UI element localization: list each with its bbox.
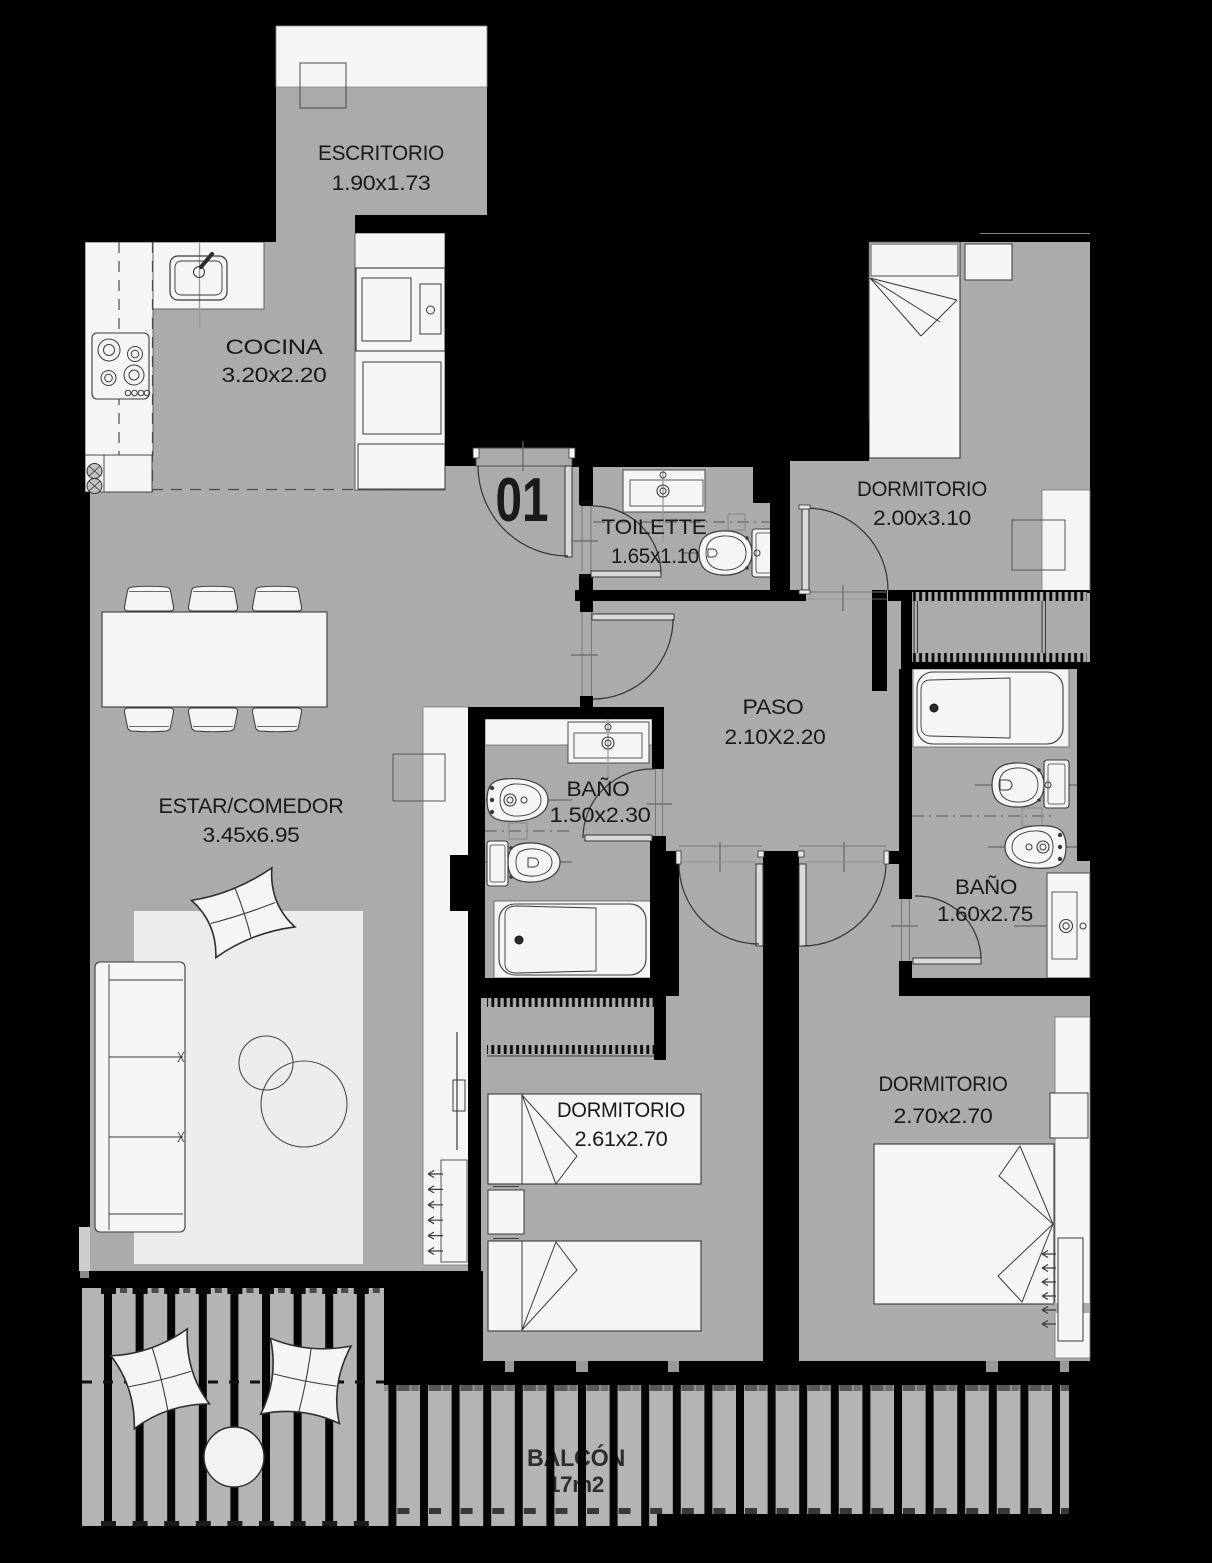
svg-text:PASO: PASO	[743, 695, 804, 719]
svg-text:1.65x1.10: 1.65x1.10	[611, 544, 699, 568]
svg-text:BAÑO: BAÑO	[955, 874, 1017, 899]
svg-text:DORMITORIO: DORMITORIO	[557, 1098, 685, 1122]
svg-text:17m2: 17m2	[548, 1472, 604, 1497]
svg-text:TOILETTE: TOILETTE	[602, 515, 707, 539]
svg-text:3.20x2.20: 3.20x2.20	[222, 363, 327, 387]
svg-text:1.90x1.73: 1.90x1.73	[332, 171, 431, 195]
svg-text:3.45x6.95: 3.45x6.95	[203, 823, 300, 847]
svg-text:BAÑO: BAÑO	[567, 776, 630, 801]
svg-text:1.50x2.30: 1.50x2.30	[550, 803, 651, 827]
svg-text:ESCRITORIO: ESCRITORIO	[318, 141, 444, 165]
svg-text:2.70x2.70: 2.70x2.70	[894, 1104, 993, 1128]
svg-text:ESTAR/COMEDOR: ESTAR/COMEDOR	[159, 794, 344, 818]
svg-text:01: 01	[496, 466, 549, 535]
svg-text:2.10X2.20: 2.10X2.20	[725, 725, 826, 749]
svg-text:2.00x3.10: 2.00x3.10	[873, 506, 971, 530]
svg-text:DORMITORIO: DORMITORIO	[857, 477, 987, 501]
svg-text:2.61x2.70: 2.61x2.70	[575, 1127, 668, 1151]
svg-text:COCINA: COCINA	[226, 335, 324, 359]
svg-text:1.60x2.75: 1.60x2.75	[937, 902, 1033, 926]
svg-text:DORMITORIO: DORMITORIO	[879, 1072, 1008, 1096]
